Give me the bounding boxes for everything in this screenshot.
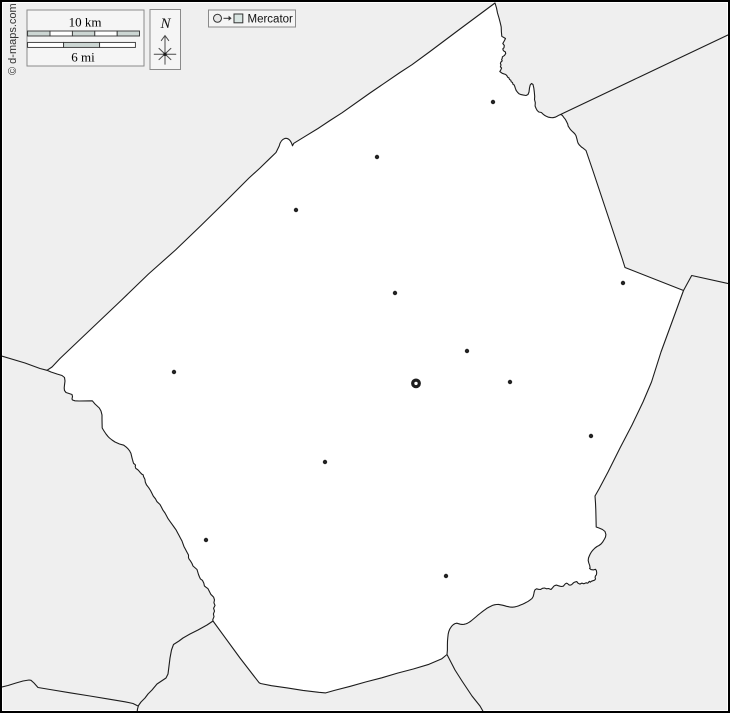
svg-text:© d-maps.com: © d-maps.com: [7, 3, 19, 75]
svg-text:6 mi: 6 mi: [71, 50, 95, 65]
svg-text:10 km: 10 km: [69, 15, 102, 30]
svg-text:N: N: [159, 16, 171, 32]
svg-text:Mercator: Mercator: [248, 13, 294, 25]
